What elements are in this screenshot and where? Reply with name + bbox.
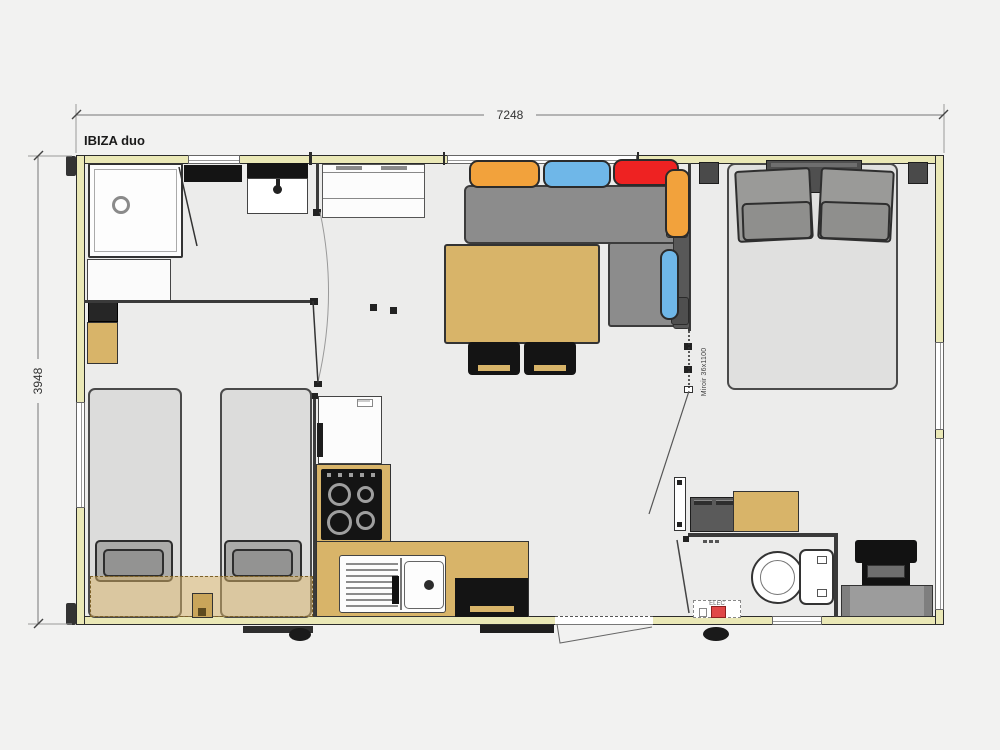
dim-label-width: 7248 <box>486 107 534 123</box>
drainboard-line <box>346 599 398 601</box>
pillow <box>103 549 164 577</box>
floor-marker <box>390 307 397 314</box>
hob-knob <box>371 473 375 477</box>
window <box>772 616 822 625</box>
dim-tick <box>34 619 43 628</box>
bathroom-cabinet <box>87 259 171 301</box>
washbasin <box>247 178 308 214</box>
floor-plan-canvas: Miroir 36x1100 ELEC <box>0 0 1000 750</box>
shower-cabin <box>88 163 183 258</box>
dresser-handle <box>694 500 712 505</box>
shower-drain <box>112 196 130 214</box>
door-pivot <box>677 522 682 527</box>
wardrobe-handle <box>381 166 407 170</box>
vanity-flange <box>924 586 932 616</box>
bedside-box-handle <box>198 608 206 616</box>
window <box>188 155 240 164</box>
entry-door-swing <box>557 624 652 643</box>
dining-chair <box>468 342 520 375</box>
vanity-countertop <box>733 491 799 532</box>
fixing-mark <box>703 540 707 543</box>
outer-wall-left <box>76 155 85 625</box>
interior-wall <box>316 163 319 211</box>
hob-knob <box>360 473 364 477</box>
pillow <box>232 549 293 577</box>
fridge <box>318 396 382 464</box>
flush-button <box>817 556 827 564</box>
fridge-label-tag <box>357 399 373 407</box>
corner-post <box>66 156 76 176</box>
window <box>76 402 85 508</box>
vanity-base-unit <box>841 585 933 617</box>
bedside-box <box>192 593 213 618</box>
entry-door-gap <box>555 616 653 625</box>
wardrobe-shelf-line <box>323 198 424 199</box>
wall-end-post <box>313 209 321 216</box>
washbasin-splashback <box>247 163 308 178</box>
sink-drain <box>424 580 434 590</box>
pillow <box>819 201 890 241</box>
fixing-mark <box>715 540 719 543</box>
floor-marker <box>370 304 377 311</box>
dim-tick <box>34 151 43 160</box>
vanity-flange <box>842 586 850 616</box>
sink-divider <box>400 558 402 610</box>
oven <box>455 578 528 617</box>
pillow <box>741 201 812 241</box>
wardrobe-handle <box>336 166 362 170</box>
sofa-cushion-side-blue <box>660 249 679 320</box>
wc-wall-right <box>834 533 838 617</box>
chair-slot <box>478 365 510 371</box>
faucet-stem <box>276 179 280 186</box>
burner <box>357 486 374 503</box>
dining-table <box>444 244 600 344</box>
sofa-cushion-blue <box>543 160 611 188</box>
chair-seat-band <box>867 565 905 578</box>
drainboard-line <box>346 605 398 607</box>
dresser-handle <box>716 500 734 505</box>
dining-chair <box>524 342 576 375</box>
shower-tray <box>94 169 177 252</box>
kitchen-faucet <box>392 576 399 604</box>
tall-unit-top <box>88 301 118 322</box>
flush-button <box>817 589 827 597</box>
hob-knob <box>327 473 331 477</box>
drainboard-line <box>346 575 398 577</box>
bathroom-shelf <box>184 165 242 182</box>
headboard-edge <box>771 163 857 167</box>
drainboard-line <box>346 563 398 565</box>
oven-handle <box>470 606 514 612</box>
dim-tick <box>72 110 81 119</box>
faucet-icon <box>273 185 282 194</box>
interior-wall <box>84 300 313 303</box>
drainboard-line <box>346 581 398 583</box>
hob-knob <box>349 473 353 477</box>
wardrobe-shelf-line <box>323 172 424 173</box>
exterior-pipe-dome <box>289 628 311 641</box>
sofa-cushion-orange <box>469 160 540 188</box>
exterior-pipe-dome <box>703 627 729 641</box>
corner-post <box>66 603 76 625</box>
elec-panel: ELEC <box>693 600 741 618</box>
nightstand <box>908 162 928 184</box>
elec-switch <box>699 608 707 617</box>
fixing-mark <box>709 540 713 543</box>
elec-breaker <box>711 606 726 618</box>
window <box>935 342 944 430</box>
chair-slot <box>534 365 566 371</box>
entry-step <box>480 625 554 633</box>
hob-knob <box>338 473 342 477</box>
sofa-cushion-corner-orange <box>665 169 690 238</box>
wc-wall-top <box>688 533 838 537</box>
tall-unit-body <box>87 322 118 364</box>
door-end <box>314 381 322 387</box>
wall-junction-tick <box>443 152 445 165</box>
mirror-label: Miroir 36x1100 <box>701 327 713 417</box>
mirror-end-post <box>684 386 693 393</box>
burner <box>328 483 351 506</box>
toilet-cistern <box>799 549 834 605</box>
burner <box>356 511 375 530</box>
burner <box>327 510 352 535</box>
door-hinge <box>683 536 689 542</box>
drainboard-line <box>346 587 398 589</box>
dim-label-height: 3948 <box>30 359 46 403</box>
wc-door-panel <box>674 477 686 531</box>
door-hinge <box>310 298 318 305</box>
wall-junction-tick <box>309 152 312 165</box>
drainboard-line <box>346 569 398 571</box>
drainboard-line <box>346 593 398 595</box>
mirror-fixing <box>684 343 692 350</box>
fridge-handle <box>317 423 323 457</box>
toilet-bowl <box>751 551 804 604</box>
plan-title: IBIZA duo <box>84 133 145 148</box>
door-pivot <box>677 480 682 485</box>
sofa-main <box>464 185 690 244</box>
wall-end-post <box>311 393 318 399</box>
gas-hob <box>321 469 382 540</box>
nightstand <box>699 162 719 184</box>
mirror-fixing <box>684 366 692 373</box>
wardrobe <box>322 164 425 218</box>
dim-tick <box>939 110 948 119</box>
toilet-seat <box>760 560 795 595</box>
window <box>935 438 944 610</box>
